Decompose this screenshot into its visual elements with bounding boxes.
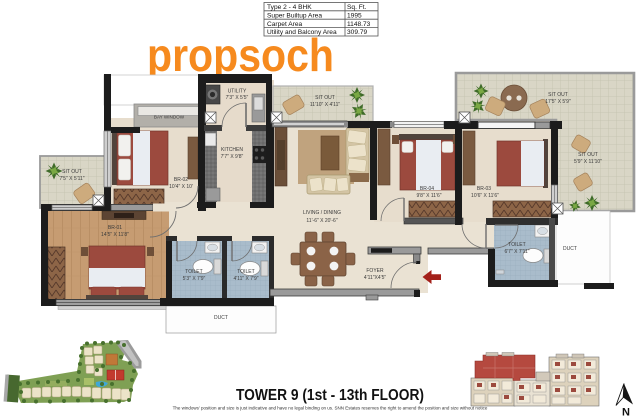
- svg-text:SIT OUT: SIT OUT: [578, 152, 598, 158]
- svg-text:7'3" X 5'5": 7'3" X 5'5": [226, 95, 249, 101]
- svg-text:309.79: 309.79: [347, 29, 368, 36]
- svg-text:SIT OUT: SIT OUT: [62, 169, 82, 175]
- svg-text:14'5" X 11'8": 14'5" X 11'8": [101, 232, 129, 238]
- svg-text:10'4" X 10': 10'4" X 10': [169, 184, 193, 190]
- svg-text:5'9" X 11'10": 5'9" X 11'10": [574, 159, 602, 165]
- svg-text:UTILITY: UTILITY: [228, 89, 247, 95]
- svg-text:The windows' position and size: The windows' position and size is just i…: [173, 406, 488, 411]
- svg-text:11'-6" X 20'-6": 11'-6" X 20'-6": [306, 218, 337, 224]
- svg-text:6'7" X 7'11": 6'7" X 7'11": [504, 249, 529, 255]
- svg-text:TOILET: TOILET: [185, 269, 202, 275]
- svg-text:TOILET: TOILET: [237, 269, 254, 275]
- svg-text:LIVING / DINING: LIVING / DINING: [303, 210, 341, 216]
- svg-text:SIT OUT: SIT OUT: [548, 92, 568, 98]
- svg-text:11'10" X 4'11": 11'10" X 4'11": [310, 102, 341, 108]
- svg-text:TOILET: TOILET: [508, 242, 525, 248]
- svg-text:BR-04: BR-04: [420, 186, 434, 192]
- svg-text:7'7" X 9'8": 7'7" X 9'8": [221, 154, 244, 160]
- svg-text:1148.73: 1148.73: [347, 21, 371, 28]
- svg-text:BR-03: BR-03: [477, 186, 491, 192]
- svg-text:DUCT: DUCT: [214, 315, 228, 321]
- svg-text:Type 2 - 4 BHK: Type 2 - 4 BHK: [267, 4, 312, 11]
- svg-text:propsoch: propsoch: [147, 29, 334, 81]
- svg-text:Carpet Area: Carpet Area: [267, 21, 303, 28]
- svg-text:BR-01: BR-01: [108, 225, 122, 231]
- svg-text:17'5" X 5'9": 17'5" X 5'9": [545, 99, 571, 105]
- svg-text:KITCHEN: KITCHEN: [221, 147, 243, 153]
- svg-text:4'11" X 7'9": 4'11" X 7'9": [233, 276, 258, 282]
- svg-text:10'6" X 11'6": 10'6" X 11'6": [471, 193, 499, 199]
- svg-text:Super Builtup Area: Super Builtup Area: [267, 12, 322, 19]
- svg-text:BAY WINDOW: BAY WINDOW: [154, 115, 185, 120]
- svg-text:5'3" X 7'9": 5'3" X 7'9": [183, 276, 206, 282]
- svg-text:9'8" X 11'6": 9'8" X 11'6": [416, 193, 441, 199]
- svg-text:N: N: [622, 407, 630, 417]
- svg-text:BR-02: BR-02: [174, 177, 188, 183]
- svg-text:FOYER: FOYER: [366, 268, 384, 274]
- svg-text:Sq. Ft.: Sq. Ft.: [347, 4, 367, 11]
- svg-text:DUCT: DUCT: [563, 246, 577, 252]
- svg-text:7'5" X 5'11": 7'5" X 5'11": [59, 176, 84, 182]
- svg-text:1995: 1995: [347, 12, 362, 19]
- svg-text:4'11"X4'5": 4'11"X4'5": [364, 275, 387, 281]
- svg-text:TOWER 9 (1st - 13th FLOOR): TOWER 9 (1st - 13th FLOOR): [236, 387, 424, 404]
- svg-text:SIT OUT: SIT OUT: [315, 95, 335, 101]
